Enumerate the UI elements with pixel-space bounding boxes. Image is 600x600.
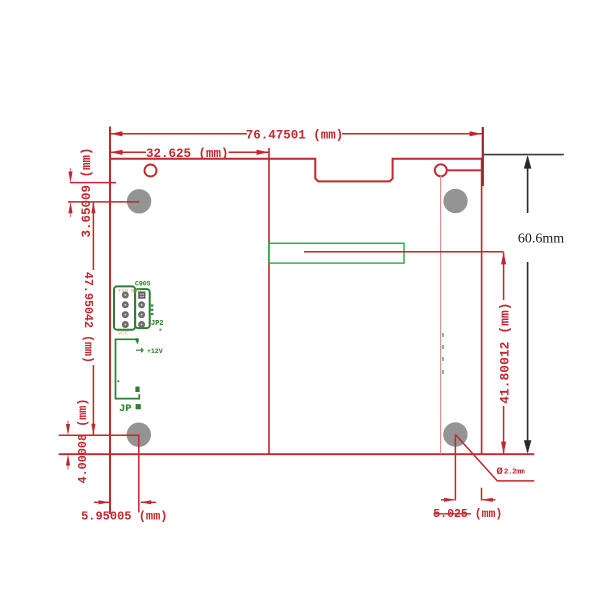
- svg-text:VCC: VCC: [118, 330, 129, 337]
- svg-text:60.6mm: 60.6mm: [518, 232, 564, 247]
- svg-text:47.95042 (mm): 47.95042 (mm): [81, 272, 95, 363]
- svg-text:4.00008 (mm): 4.00008 (mm): [76, 399, 90, 484]
- svg-text:5.95005 (mm): 5.95005 (mm): [81, 510, 167, 524]
- svg-text:JP2: JP2: [151, 320, 164, 328]
- svg-text:2.2mm: 2.2mm: [504, 468, 525, 476]
- svg-text:JP: JP: [119, 403, 132, 415]
- svg-text:+12V: +12V: [147, 348, 163, 355]
- svg-text:Ø: Ø: [497, 466, 504, 478]
- svg-text:3.65009 (mm): 3.65009 (mm): [80, 147, 94, 237]
- svg-text:41.80012 (mm): 41.80012 (mm): [498, 302, 513, 403]
- svg-text:76.47501 (mm): 76.47501 (mm): [246, 128, 344, 142]
- svg-text:32.625 (mm): 32.625 (mm): [146, 147, 229, 161]
